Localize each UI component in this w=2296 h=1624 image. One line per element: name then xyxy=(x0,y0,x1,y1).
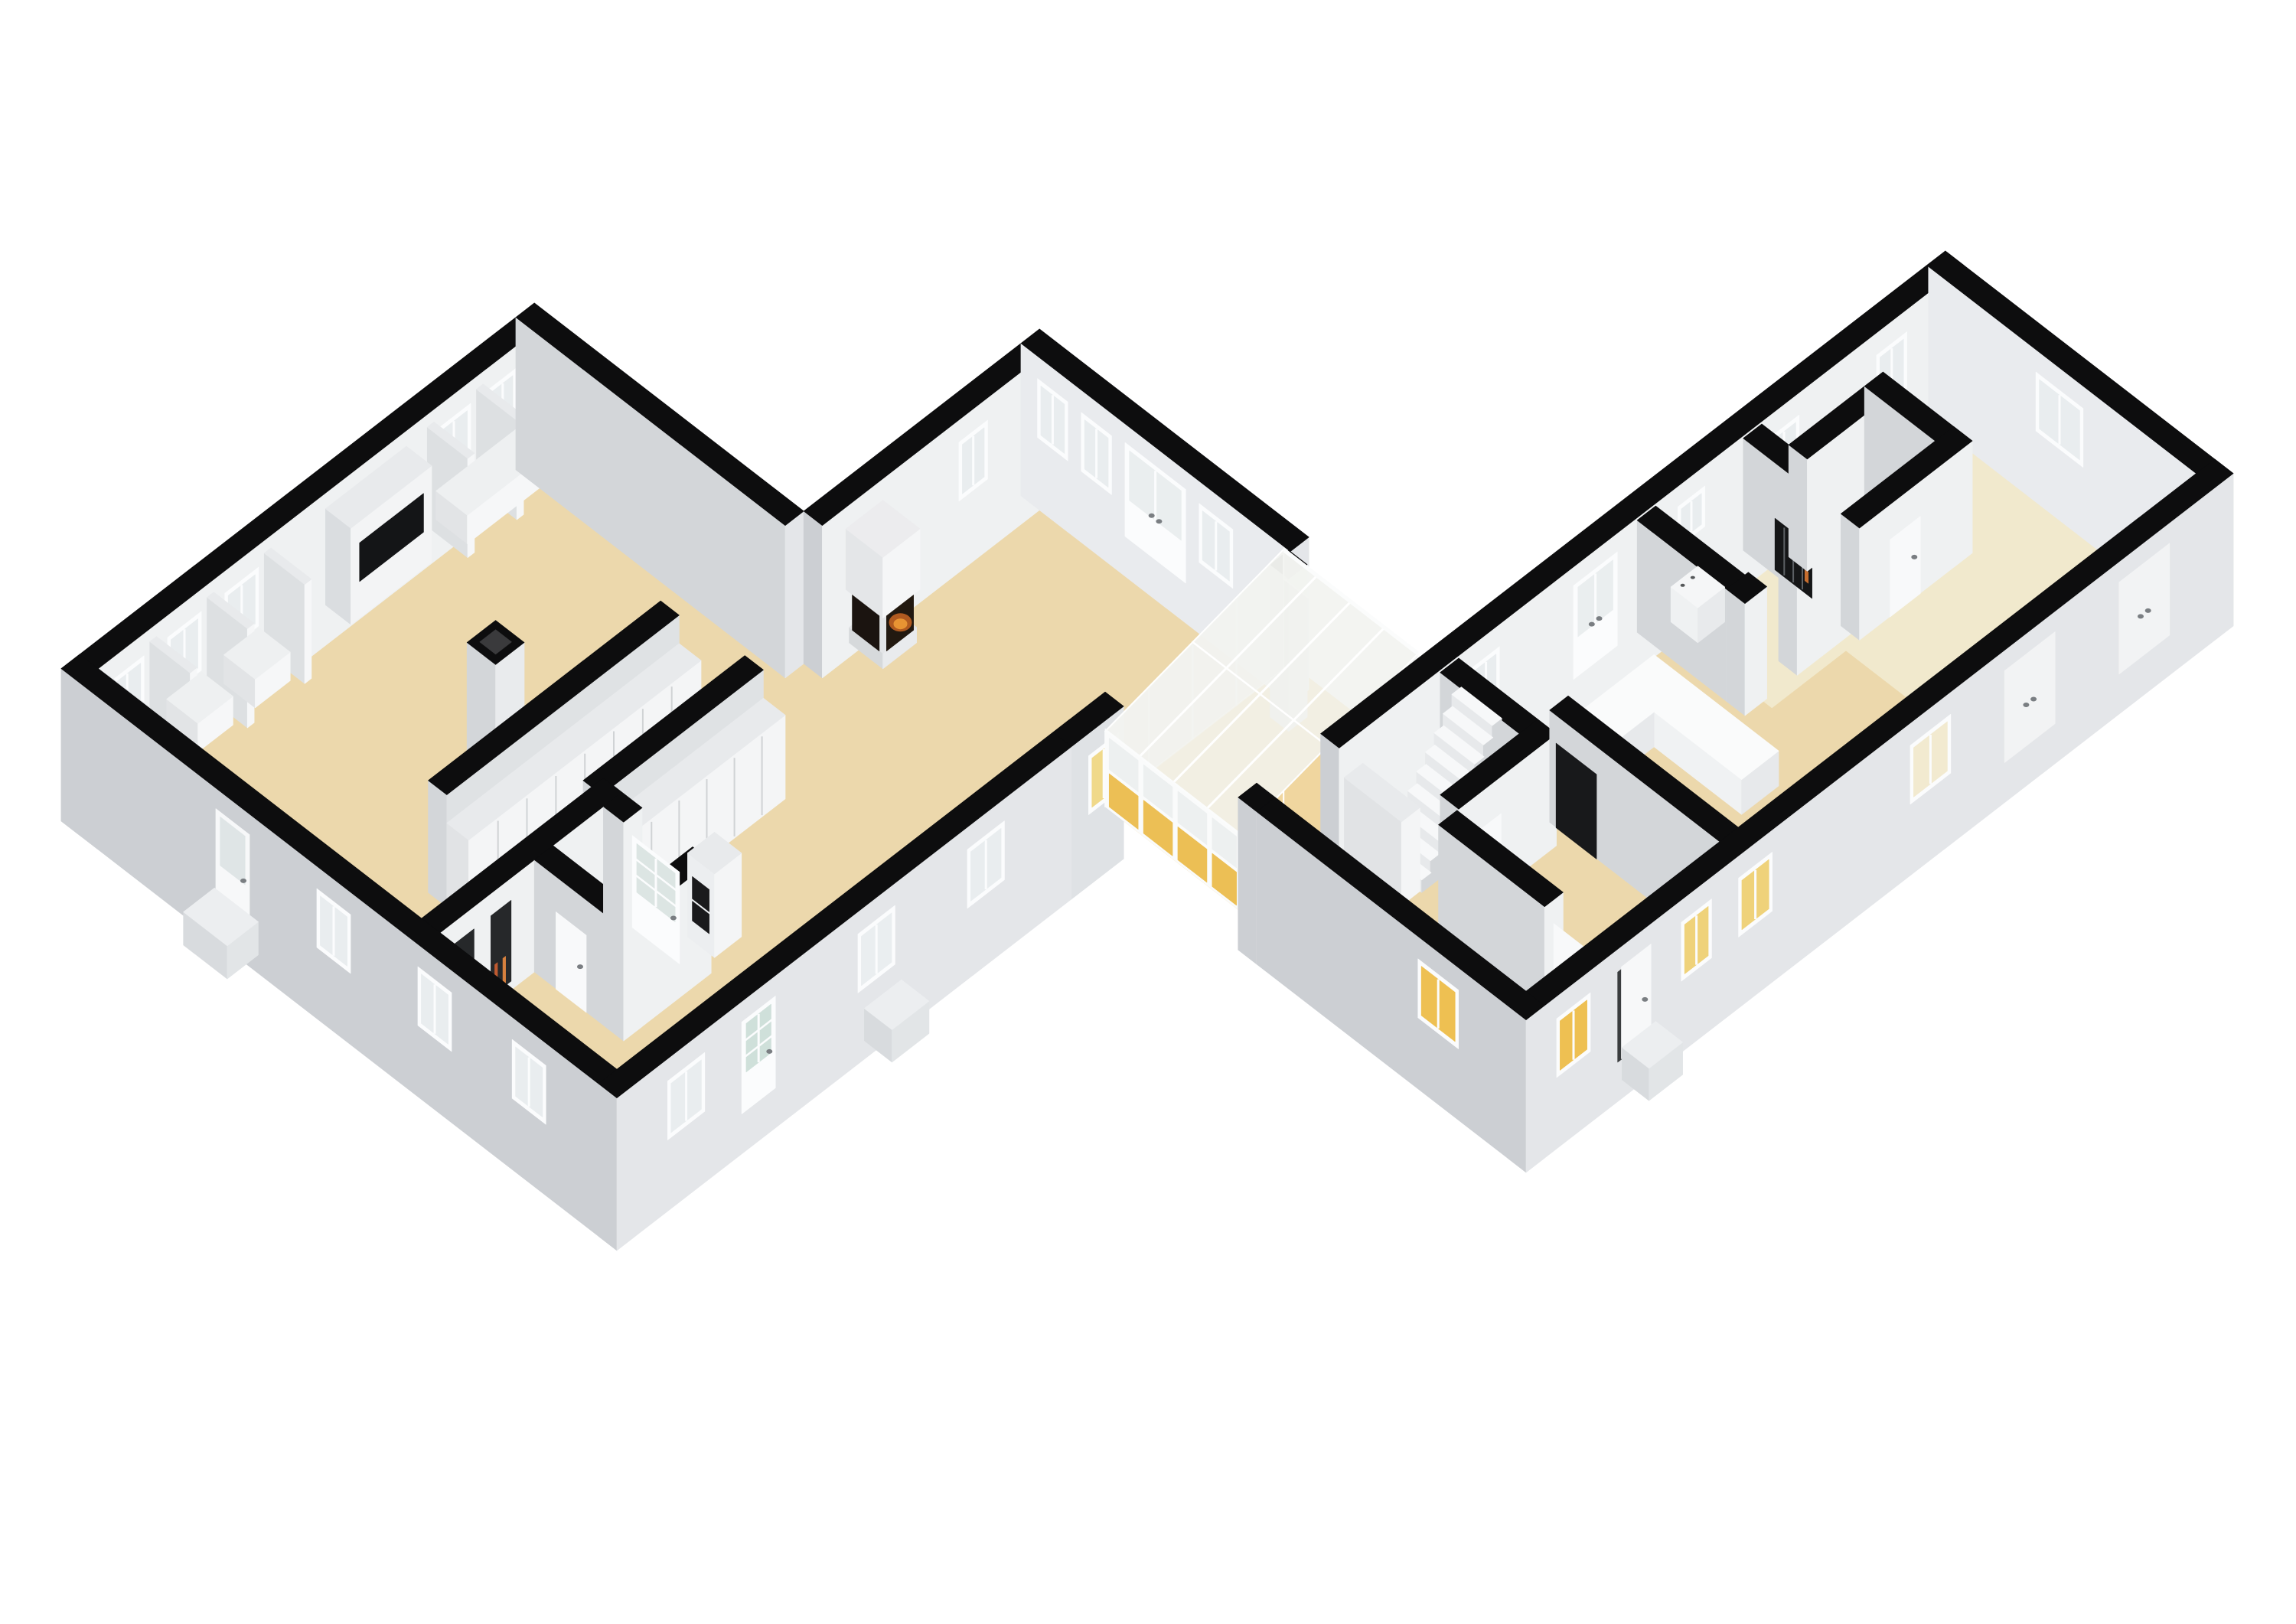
floorplan-scene-svg xyxy=(0,0,2296,1624)
radiator-valve xyxy=(1805,569,1808,583)
floorplan-3d-render xyxy=(0,0,2296,1624)
page xyxy=(0,0,2296,1624)
fire-glow xyxy=(894,618,908,629)
washer-knob xyxy=(1681,584,1685,587)
washer-knob xyxy=(1691,576,1695,579)
floorplan-geometry xyxy=(61,251,2233,1251)
laundry-wall xyxy=(1727,572,1767,716)
